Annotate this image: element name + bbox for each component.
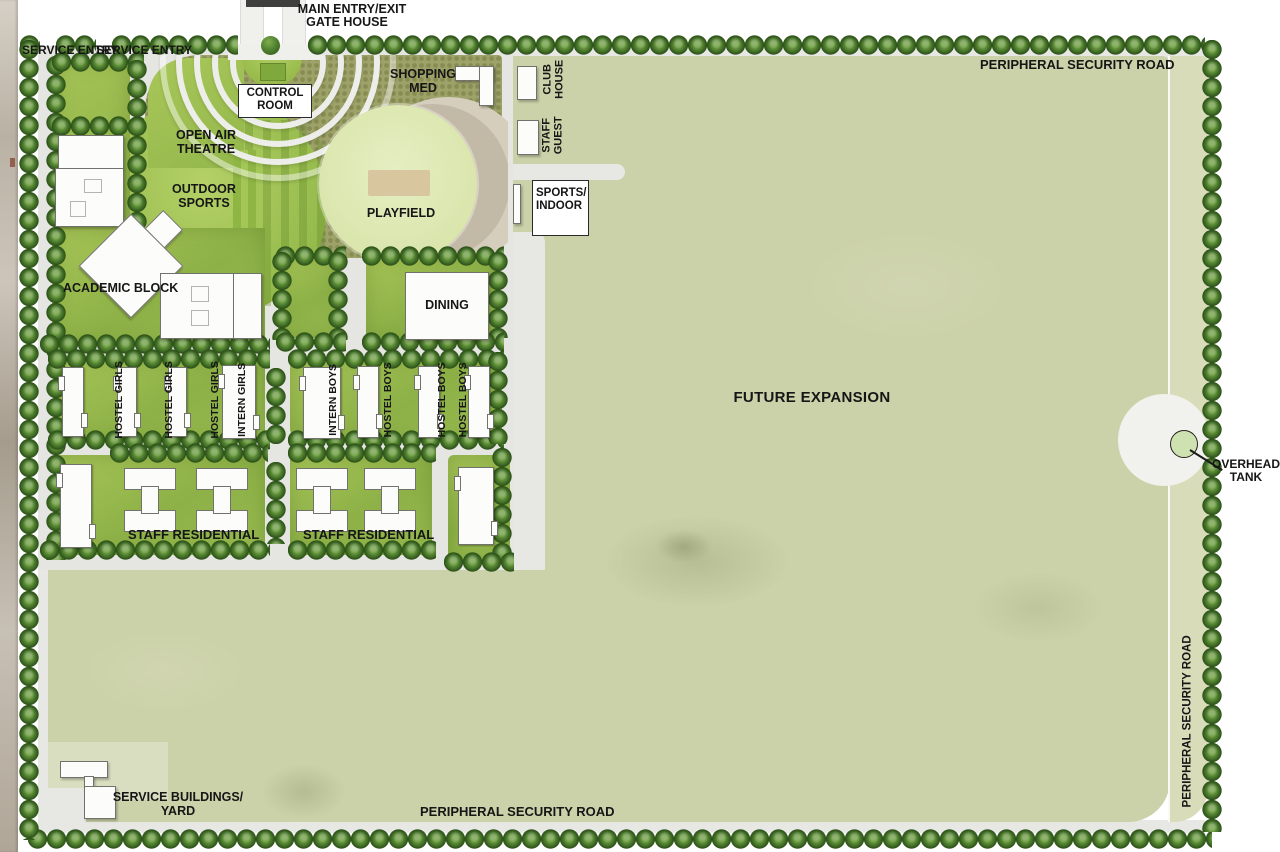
- theatre-stage-inner: [260, 63, 286, 81]
- southwest-road-notch: [38, 788, 86, 822]
- tree-column: [19, 40, 39, 840]
- tree-column: [488, 352, 508, 444]
- median-tree: [261, 36, 280, 55]
- main-entry-label: MAIN ENTRY/EXIT: [292, 2, 412, 16]
- east-campus-road: [513, 232, 545, 570]
- staff-residential-tower-east: [458, 467, 494, 545]
- tree-row: [288, 540, 436, 560]
- sports-indoor-building: [513, 184, 521, 224]
- overhead-tank-label: OVERHEAD TANK: [1212, 458, 1280, 485]
- club-house-line2: HOUSE: [554, 55, 566, 103]
- tree-row: [444, 552, 514, 572]
- intern-boys-label: INTERN BOYS: [328, 360, 340, 440]
- sports-indoor-line2: INDOOR: [536, 200, 588, 213]
- left-margin-speck: [10, 158, 15, 167]
- playfield-stage-pad: [368, 170, 430, 196]
- room-outline: [70, 201, 86, 217]
- hostel-girls-label: HOSTEL GIRLS: [114, 360, 126, 440]
- peripheral-road-label-top: PERIPHERAL SECURITY ROAD: [980, 58, 1175, 73]
- tree-row: [28, 829, 1212, 849]
- academic-building-west: [55, 168, 124, 227]
- hostel-girls-label: HOSTEL GIRLS: [164, 360, 176, 440]
- tree-row: [110, 443, 268, 463]
- service-entry-label: SERVICE ENTRY: [96, 44, 192, 57]
- open-air-theatre-label: OPEN AIR THEATRE: [160, 128, 252, 156]
- club-house-road: [513, 164, 625, 180]
- staff-guest-building: [517, 120, 539, 155]
- cluster-core: [141, 486, 159, 514]
- tree-column: [492, 448, 512, 560]
- staff-residential-cluster: [124, 468, 176, 530]
- playfield-label: PLAYFIELD: [356, 206, 446, 220]
- outdoor-sports-label: OUTDOOR SPORTS: [158, 182, 250, 210]
- gate-house-label: GATE HOUSE: [292, 15, 402, 29]
- peripheral-road-label-right: PERIPHERAL SECURITY ROAD: [1182, 637, 1195, 807]
- shopping-building-wing: [479, 66, 494, 106]
- cluster-core: [381, 486, 399, 514]
- peripheral-road-label-bottom: PERIPHERAL SECURITY ROAD: [420, 805, 615, 820]
- cluster-core: [313, 486, 331, 514]
- room-outline: [191, 286, 209, 302]
- club-house-building: [517, 66, 537, 100]
- staff-residential-label: STAFF RESIDENTIAL: [128, 528, 259, 543]
- tree-column: [1202, 40, 1222, 832]
- tree-column: [266, 462, 286, 544]
- cluster-core: [213, 486, 231, 514]
- hostel-girls-building: [62, 367, 84, 437]
- tree-column: [266, 368, 286, 444]
- hostel-boys-label: HOSTEL BOYS: [383, 360, 395, 440]
- staff-residential-label: STAFF RESIDENTIAL: [303, 528, 434, 543]
- club-house-label: CLUB HOUSE: [542, 55, 567, 103]
- staff-residential-tower-west: [60, 464, 92, 548]
- shopping-med-label: SHOPPING MED: [378, 67, 468, 95]
- service-yard-line1: SERVICE BUILDINGS/: [112, 790, 244, 804]
- sports-indoor-label-box: SPORTS/ INDOOR: [532, 180, 589, 236]
- hostel-girls-label: HOSTEL GIRLS: [210, 360, 222, 440]
- service-yard-line2: YARD: [112, 804, 244, 818]
- hostel-boys-label: HOSTEL BOYS: [437, 360, 449, 440]
- hostel-boys-label: HOSTEL BOYS: [458, 360, 470, 440]
- hostel-boys-building: [468, 366, 490, 438]
- tree-column: [272, 252, 292, 340]
- staff-guest-line2: GUEST: [553, 111, 565, 159]
- staff-guest-line1: STAFF: [541, 111, 553, 159]
- tree-column: [127, 60, 147, 234]
- site-plan: MAIN ENTRY/EXIT GATE HOUSE SERVICE ENTRY…: [0, 0, 1280, 852]
- control-room-label-box: CONTROL ROOM: [238, 84, 312, 118]
- academic-building-north: [58, 135, 124, 169]
- club-house-line1: CLUB: [542, 55, 554, 103]
- staff-guest-label: STAFF GUEST: [541, 111, 566, 159]
- tree-row: [308, 35, 1205, 55]
- staff-residential-cluster: [196, 468, 248, 530]
- left-margin-texture: [0, 0, 18, 852]
- service-yard-label: SERVICE BUILDINGS/ YARD: [112, 790, 244, 818]
- sports-indoor-line1: SPORTS/: [536, 187, 588, 200]
- staff-residential-cluster: [296, 468, 348, 530]
- future-expansion-label: FUTURE EXPANSION: [732, 390, 892, 407]
- room-outline: [84, 179, 102, 193]
- staff-residential-cluster: [364, 468, 416, 530]
- tree-row: [362, 246, 504, 266]
- tree-column: [328, 252, 348, 340]
- room-outline: [191, 310, 209, 326]
- academic-building-south-annex: [233, 273, 262, 339]
- tree-row: [288, 443, 436, 463]
- hostel-boys-building: [357, 366, 379, 438]
- dining-label: DINING: [407, 298, 487, 312]
- tree-column: [488, 252, 508, 338]
- academic-block-label: ACADEMIC BLOCK: [63, 281, 178, 295]
- intern-girls-label: INTERN GIRLS: [237, 360, 249, 440]
